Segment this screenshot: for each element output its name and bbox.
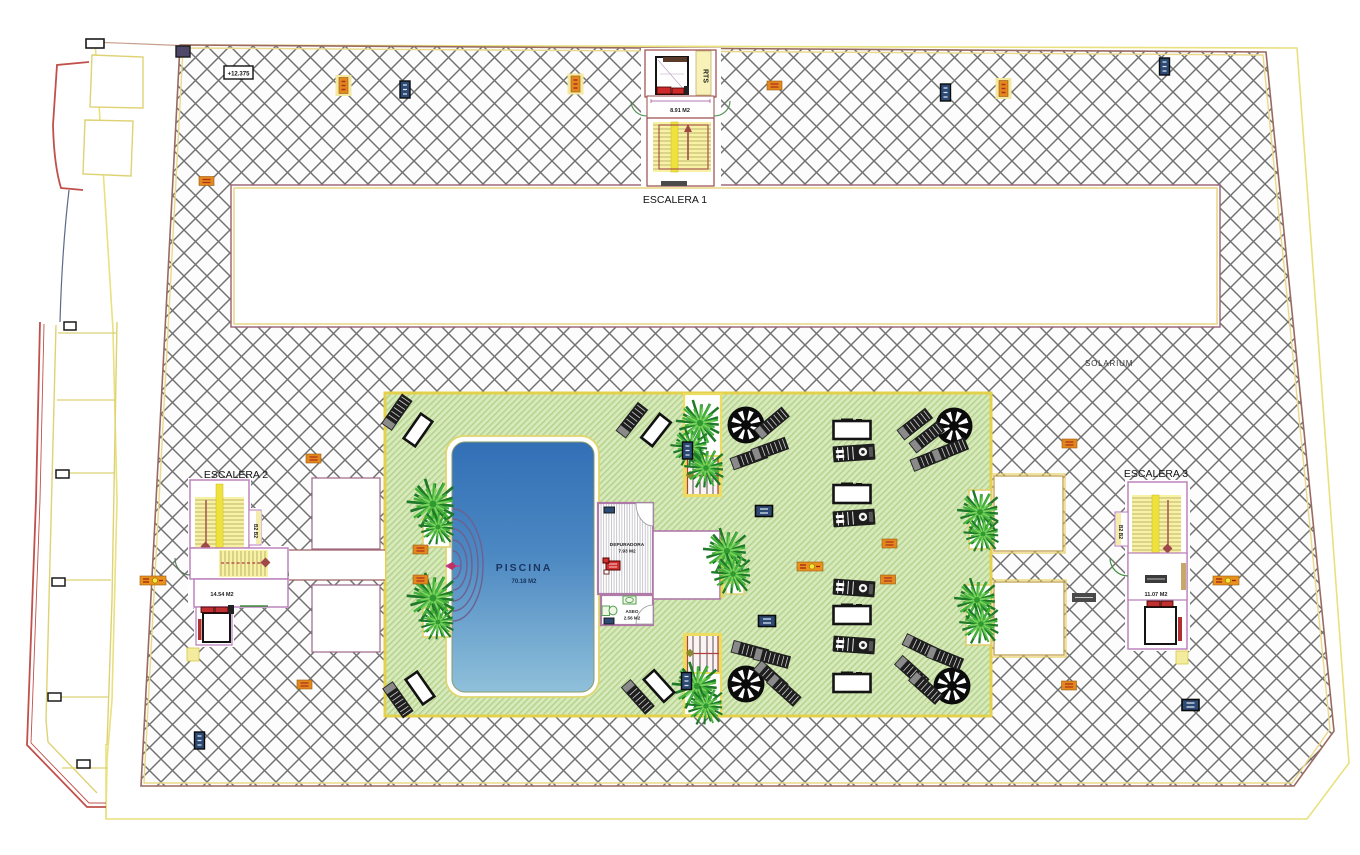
svg-text:DEPURADORA: DEPURADORA — [610, 542, 645, 548]
svg-text:+12.375: +12.375 — [228, 72, 251, 78]
svg-text:B2 B2: B2 B2 — [252, 524, 258, 538]
svg-text:7.93 M2: 7.93 M2 — [618, 549, 636, 555]
svg-text:8.91 M2: 8.91 M2 — [670, 108, 690, 114]
svg-text:PISCINA: PISCINA — [496, 562, 553, 574]
svg-text:B2 B2: B2 B2 — [1117, 525, 1123, 539]
svg-text:11.07 M2: 11.07 M2 — [1144, 592, 1167, 598]
svg-text:ESCALERA 2: ESCALERA 2 — [204, 469, 268, 481]
svg-text:RTS: RTS — [702, 69, 709, 83]
svg-text:ESCALERA 3: ESCALERA 3 — [1124, 468, 1188, 480]
svg-text:2.56 M2: 2.56 M2 — [624, 616, 641, 621]
svg-text:ESCALERA 1: ESCALERA 1 — [643, 194, 707, 206]
svg-text:ASEO: ASEO — [625, 609, 638, 614]
svg-text:14.54 M2: 14.54 M2 — [210, 592, 233, 598]
svg-text:70.18 M2: 70.18 M2 — [511, 579, 537, 585]
svg-text:SOLARIUM: SOLARIUM — [1085, 359, 1133, 368]
